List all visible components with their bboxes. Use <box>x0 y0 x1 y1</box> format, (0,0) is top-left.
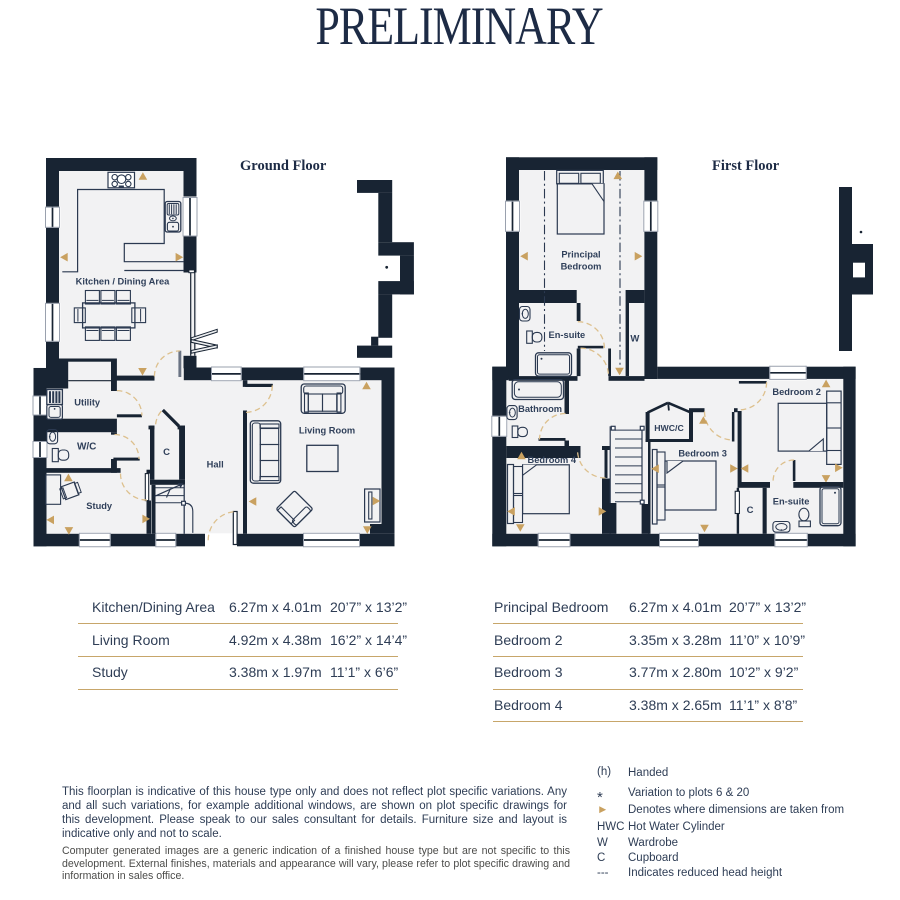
svg-text:Study: Study <box>86 501 113 511</box>
svg-text:Bedroom 4: Bedroom 4 <box>528 455 577 465</box>
svg-text:W/C: W/C <box>77 442 96 453</box>
svg-text:Bedroom: Bedroom <box>561 262 602 272</box>
svg-text:W: W <box>630 333 639 344</box>
svg-text:C: C <box>747 505 754 516</box>
svg-text:En-suite: En-suite <box>549 330 586 340</box>
svg-text:En-suite: En-suite <box>773 497 810 507</box>
svg-text:Bedroom 2: Bedroom 2 <box>772 387 821 397</box>
svg-text:Kitchen / Dining Area: Kitchen / Dining Area <box>76 277 170 287</box>
svg-text:Principal: Principal <box>561 250 600 260</box>
svg-text:Living Room: Living Room <box>299 426 355 436</box>
svg-text:HWC/C: HWC/C <box>654 423 684 433</box>
svg-text:C: C <box>163 447 170 458</box>
svg-text:Bedroom 3: Bedroom 3 <box>678 449 727 459</box>
svg-text:Hall: Hall <box>207 460 224 470</box>
svg-text:Bathroom: Bathroom <box>518 404 562 414</box>
svg-text:Utility: Utility <box>74 398 101 408</box>
